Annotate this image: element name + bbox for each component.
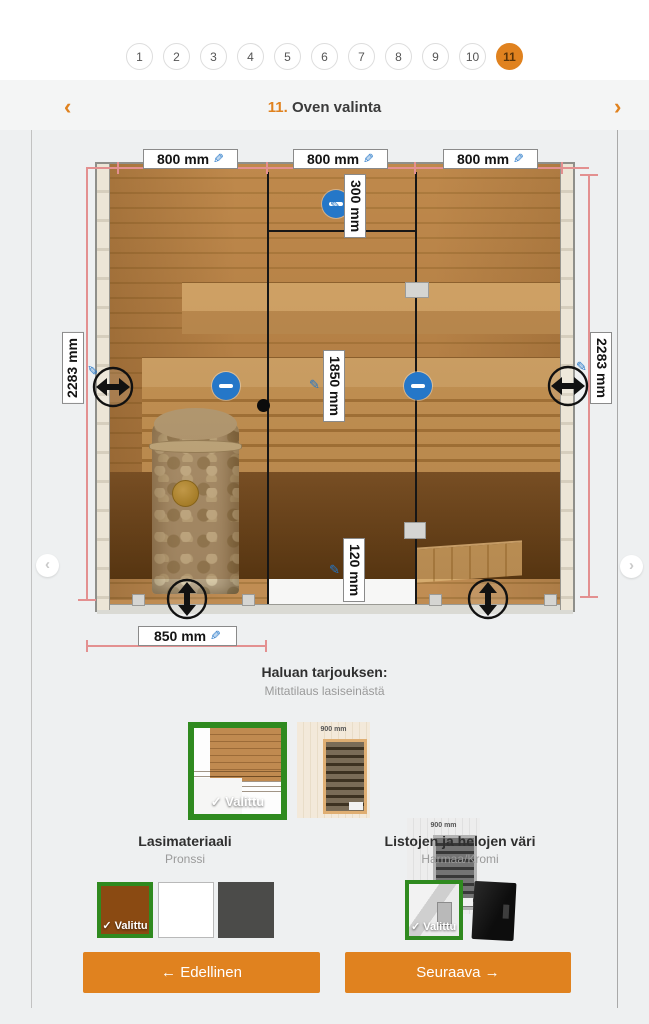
step-10[interactable]: 10 <box>459 43 486 70</box>
door-option-wood-frame[interactable]: 900 mm <box>297 722 370 818</box>
resize-vertical-left-icon[interactable] <box>166 578 208 620</box>
step-2[interactable]: 2 <box>163 43 190 70</box>
edit-pencil-icon: ✎ <box>328 563 343 578</box>
carousel-prev-icon[interactable]: ‹ <box>36 554 59 577</box>
edit-pencil-icon: ✎ <box>308 378 323 393</box>
door-threshold-floor <box>267 579 415 604</box>
glass-clamp <box>405 282 429 298</box>
measure-tick <box>265 640 267 652</box>
selected-badge: ✓ Valittu <box>411 920 459 933</box>
measure-width-right[interactable]: 800 mm✎ <box>443 149 538 169</box>
resize-vertical-right-icon[interactable] <box>467 578 509 620</box>
edit-pencil-icon: ✎ <box>213 151 224 167</box>
measure-transom-height[interactable]: 300 mm✎ <box>344 174 366 238</box>
measure-tick <box>78 599 96 601</box>
door-slats <box>326 742 364 811</box>
offer-title: Haluan tarjouksen: <box>0 664 649 680</box>
measure-width-left[interactable]: 800 mm✎ <box>143 149 238 169</box>
glass-material-value: Pronssi <box>85 852 285 866</box>
step-indicator: 1 2 3 4 5 6 7 8 9 10 11 <box>0 43 649 70</box>
door-mini-label <box>349 802 363 810</box>
glass-clamp <box>404 522 426 539</box>
door-width-label: 900 mm <box>407 822 480 829</box>
remove-right-panel-icon[interactable] <box>404 372 432 400</box>
previous-button[interactable]: ← Edellinen <box>83 952 320 993</box>
door-option-custom-selected[interactable]: ✓ Valittu <box>188 722 287 820</box>
measure-width-center[interactable]: 800 mm✎ <box>293 149 388 169</box>
measure-bottom-gap[interactable]: 120 mm✎ <box>343 538 365 602</box>
measure-height-left[interactable]: 2283 mm✎ <box>62 332 84 404</box>
step-5[interactable]: 5 <box>274 43 301 70</box>
measure-tick <box>117 162 119 174</box>
edit-pencil-icon: ✎ <box>84 360 99 375</box>
page-title: 11. Oven valinta <box>0 99 649 116</box>
trim-swatch-chrome-selected[interactable]: ✓ Valittu <box>405 880 463 940</box>
step-11-active[interactable]: 11 <box>496 43 523 70</box>
trim-color-title: Listojen ja helojen väri <box>350 833 570 849</box>
edit-pencil-icon: ✎ <box>513 151 524 167</box>
glass-foot-clamp <box>132 594 145 606</box>
step-6[interactable]: 6 <box>311 43 338 70</box>
selected-badge: ✓ Valittu <box>101 919 149 932</box>
trim-color-value: Harmaa/Kromi <box>350 852 570 866</box>
measure-tick <box>414 162 416 174</box>
remove-left-panel-icon[interactable] <box>212 372 240 400</box>
sauna-configurator-page: 1 2 3 4 5 6 7 8 9 10 11 ‹ › 11. Oven val… <box>0 0 649 1024</box>
measure-height-right[interactable]: 2283 mm✎ <box>590 332 612 404</box>
step-3[interactable]: 3 <box>200 43 227 70</box>
door-width-label: 900 mm <box>297 726 370 733</box>
measure-tick <box>86 640 88 652</box>
edit-pencil-icon: ✎ <box>210 628 221 644</box>
selected-badge: ✓ Valittu <box>194 794 281 810</box>
measure-tick <box>266 162 268 174</box>
door-preview <box>323 739 367 814</box>
glass-material-title: Lasimateriaali <box>85 833 285 849</box>
measure-tick <box>561 162 563 174</box>
door-handle-dot <box>257 399 270 412</box>
offer-subtitle: Mittatilaus lasiseinästä <box>0 684 649 698</box>
edit-pencil-icon: ✎ <box>363 151 374 167</box>
glass-swatch-clear[interactable] <box>158 882 214 938</box>
glass-divider-left <box>267 172 269 604</box>
page-title-text: Oven valinta <box>292 99 381 116</box>
measure-line-left <box>86 167 88 600</box>
glass-swatch-gray[interactable] <box>218 882 274 938</box>
trim-swatch-black[interactable] <box>472 881 517 941</box>
step-8[interactable]: 8 <box>385 43 412 70</box>
step-4[interactable]: 4 <box>237 43 264 70</box>
measure-tick <box>580 596 598 598</box>
step-1[interactable]: 1 <box>126 43 153 70</box>
glass-foot-clamp <box>544 594 557 606</box>
step-9[interactable]: 9 <box>422 43 449 70</box>
door-transom-line <box>267 230 417 232</box>
page-title-number: 11. <box>268 99 288 116</box>
glass-foot-clamp <box>429 594 442 606</box>
measure-door-height[interactable]: 1850 mm✎ <box>323 350 345 422</box>
edit-pencil-icon: ✎ <box>575 360 590 375</box>
glass-foot-clamp <box>242 594 255 606</box>
glass-swatch-bronze-selected[interactable]: ✓ Valittu <box>97 882 153 938</box>
edit-pencil-icon: ✎ <box>329 199 344 214</box>
carousel-next-icon[interactable]: › <box>620 555 643 578</box>
measure-bottom-width[interactable]: 850 mm✎ <box>138 626 237 646</box>
step-7[interactable]: 7 <box>348 43 375 70</box>
measure-tick <box>580 174 598 176</box>
next-button[interactable]: Seuraava → <box>345 952 571 993</box>
